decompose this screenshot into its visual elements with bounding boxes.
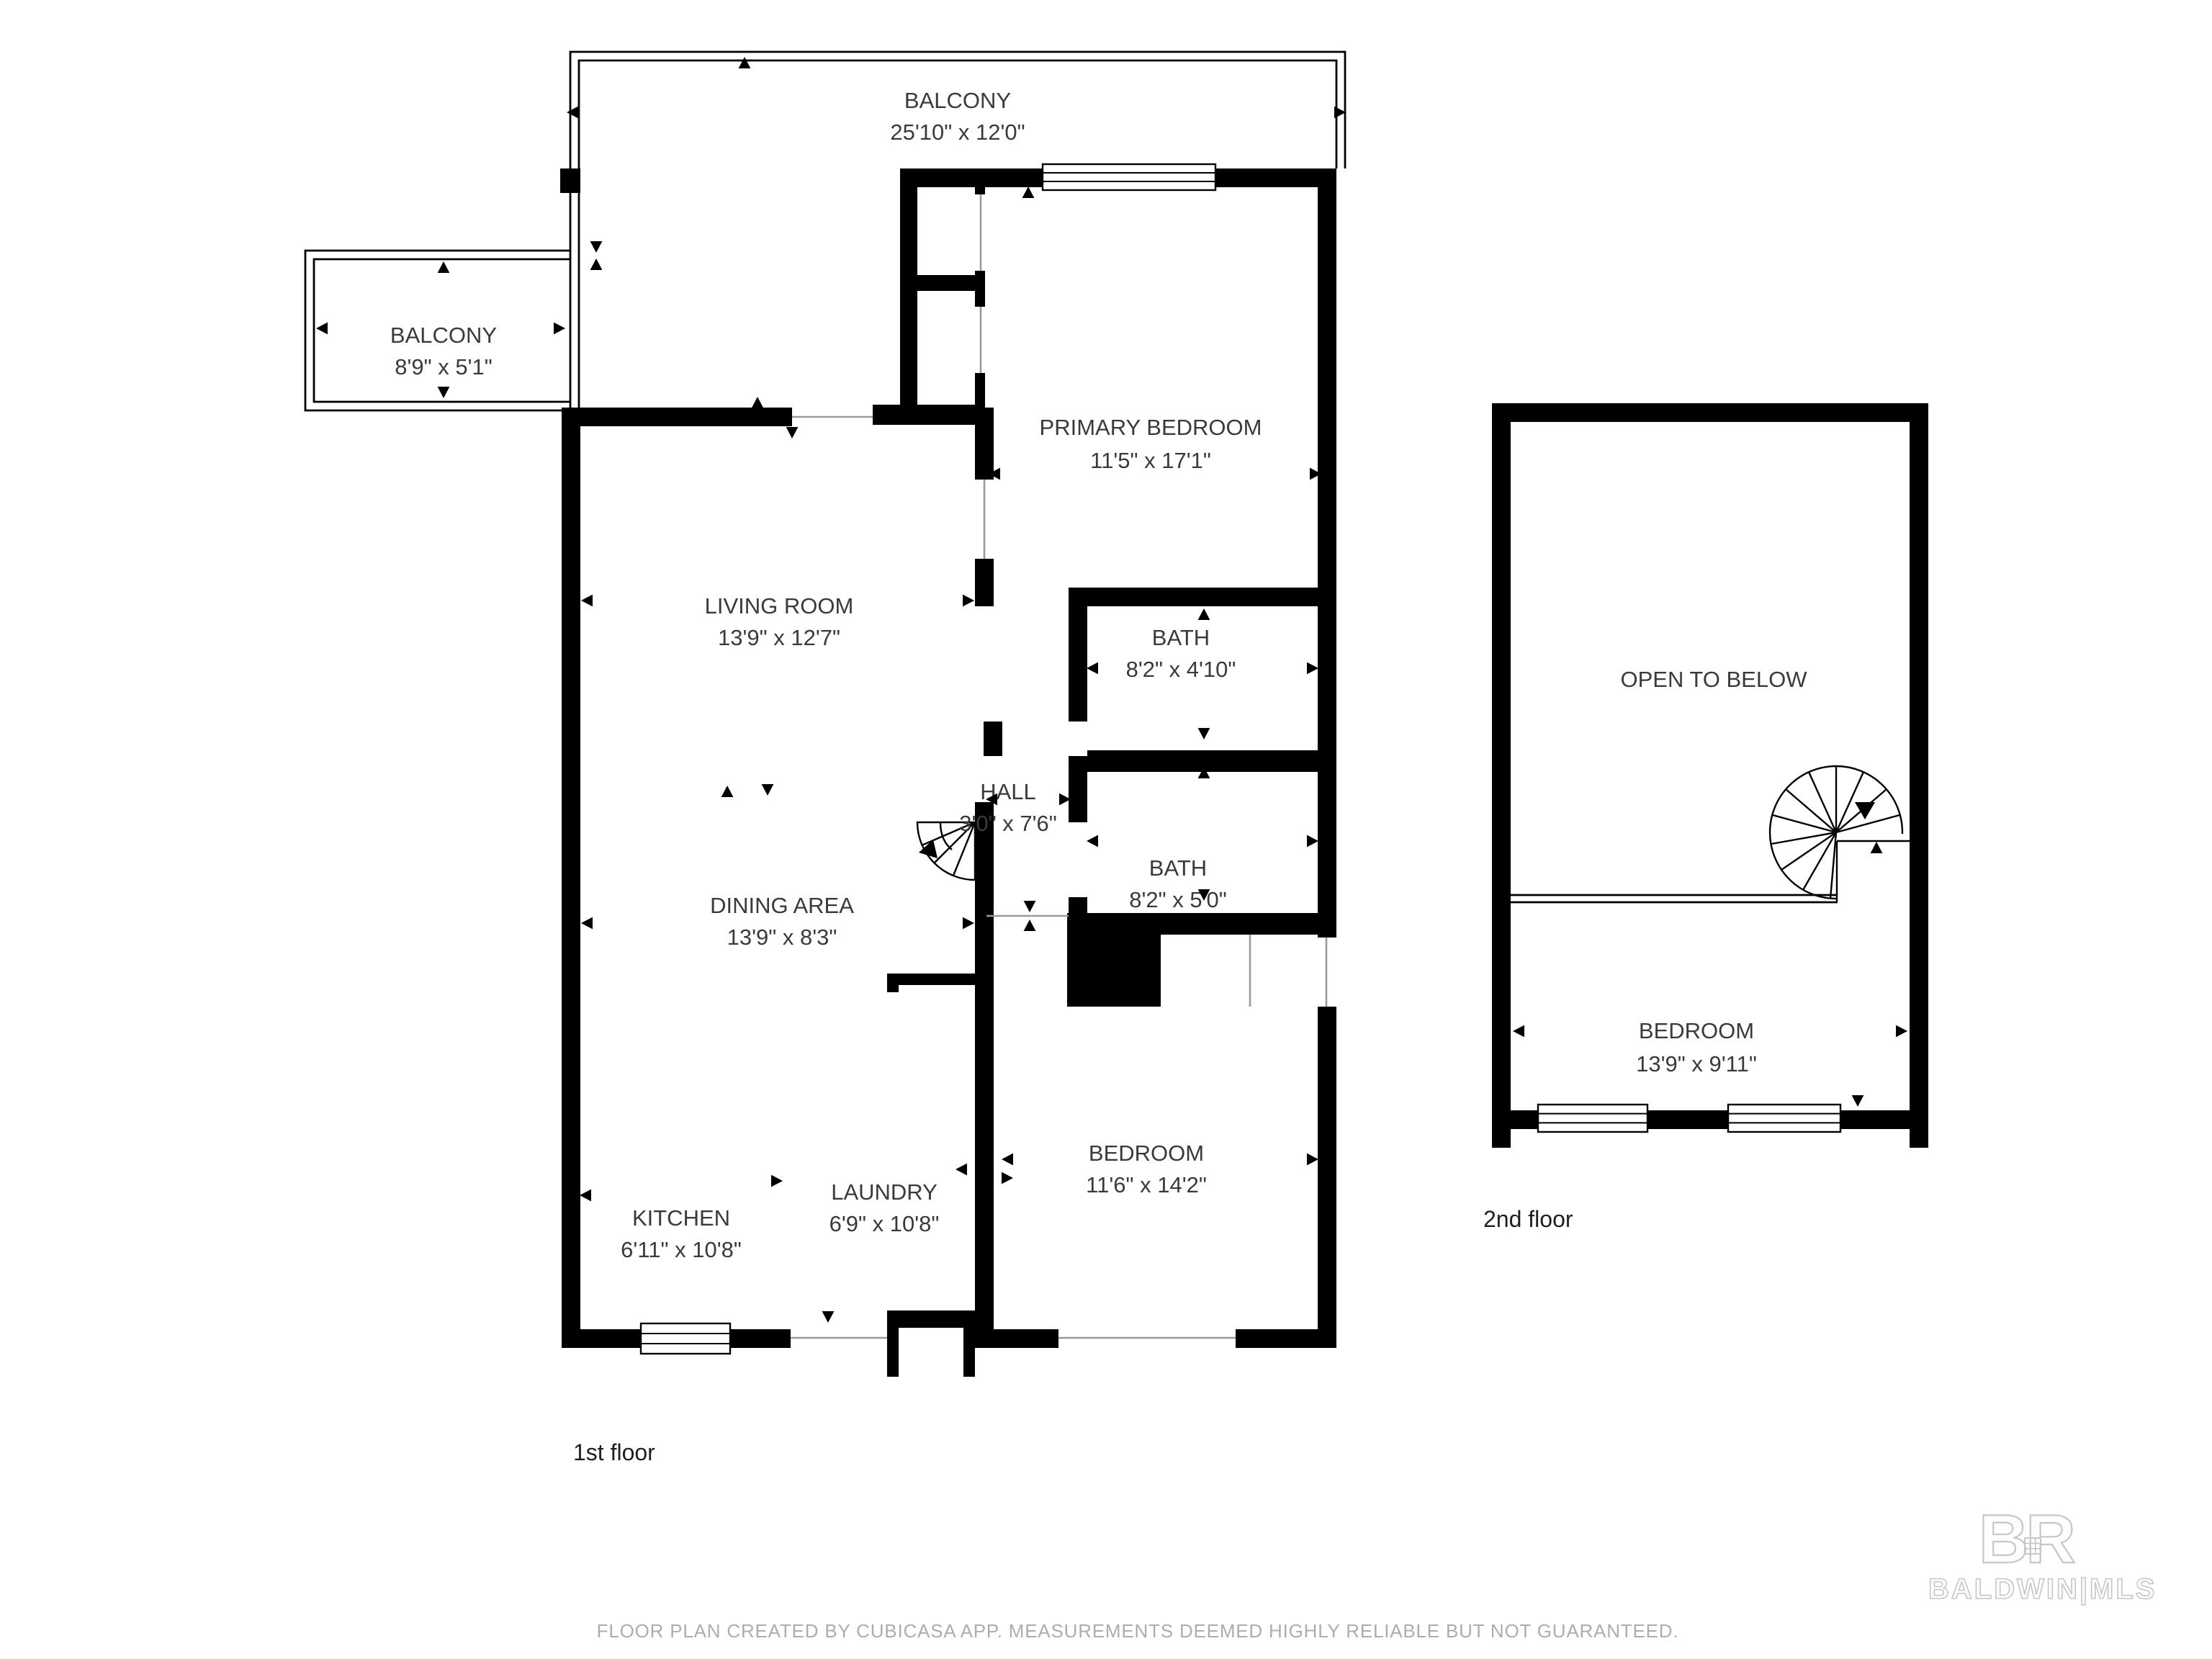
- room-label-kitchen: KITCHEN: [632, 1205, 730, 1231]
- bedroom-window-right: [1728, 1105, 1840, 1132]
- dim-arrow-icon: [316, 323, 328, 335]
- dim-arrow-icon: [1307, 662, 1318, 675]
- second-floor-plan: OPEN TO BELOW BEDROOM 13'9" x 9'11" 2nd …: [1483, 403, 1928, 1232]
- dim-arrow-icon: [1198, 728, 1210, 739]
- dim-arrow-icon: [590, 258, 603, 270]
- kitchen-window: [641, 1323, 730, 1354]
- dim-arrow-icon: [581, 595, 593, 607]
- window-frame: [1538, 1105, 1647, 1132]
- dim-arrow-icon: [567, 107, 578, 119]
- entry-alcove: [899, 1328, 963, 1377]
- room-label-living-room: LIVING ROOM: [705, 593, 854, 619]
- room-dims-bedroom-2nd: 13'9" x 9'11": [1636, 1051, 1757, 1076]
- floor-plan-canvas: BALCONY 25'10" x 12'0" BALCONY 8'9" x 5'…: [0, 0, 2212, 1659]
- dim-arrow-icon: [1024, 901, 1036, 912]
- dim-arrow-icon: [752, 397, 764, 408]
- logo-monogram: BR: [1979, 1501, 2074, 1578]
- room-dims-bath-1: 8'2" x 4'10": [1126, 657, 1236, 682]
- dim-arrow-icon: [580, 1190, 591, 1202]
- window-frame: [1043, 164, 1215, 190]
- footer-disclaimer: FLOOR PLAN CREATED BY CUBICASA APP. MEAS…: [597, 1620, 1679, 1642]
- dim-arrow-icon: [1852, 1095, 1864, 1107]
- logo-wordmark: BALDWIN|MLS: [1928, 1573, 2157, 1605]
- room-dims-hall: 3'0" x 7'6": [959, 811, 1057, 836]
- window-frame: [641, 1323, 730, 1354]
- room-dims-laundry: 6'9" x 10'8": [829, 1211, 940, 1236]
- room-dims-bath-2: 8'2" x 5'0": [1129, 887, 1227, 912]
- room-dims-bedroom-1st: 11'6" x 14'2": [1086, 1172, 1207, 1197]
- room-dims-balcony-side: 8'9" x 5'1": [395, 354, 493, 379]
- dim-arrow-icon: [762, 784, 774, 796]
- dim-arrow-icon: [1087, 662, 1098, 675]
- dim-arrow-icon: [590, 241, 603, 253]
- primary-bedroom-balcony-window: [1043, 164, 1215, 190]
- floor-label-2nd: 2nd floor: [1483, 1206, 1573, 1232]
- stair-direction-arrow-icon: [1855, 802, 1875, 819]
- dim-arrow-icon: [554, 323, 565, 335]
- room-label-dining-area: DINING AREA: [710, 893, 854, 918]
- dim-arrow-icon: [739, 57, 751, 68]
- dimension-arrows-1st-floor: [316, 57, 1346, 1323]
- room-label-open-to-below: OPEN TO BELOW: [1621, 667, 1808, 692]
- room-label-laundry: LAUNDRY: [831, 1179, 938, 1205]
- dim-arrow-icon: [1307, 835, 1318, 848]
- room-dims-living-room: 13'9" x 12'7": [718, 625, 840, 650]
- bedroom-window-left: [1538, 1105, 1647, 1132]
- dim-arrow-icon: [1896, 1025, 1907, 1038]
- dim-arrow-icon: [1002, 1172, 1013, 1184]
- room-label-bath-2: BATH: [1149, 855, 1207, 881]
- room-label-balcony-side: BALCONY: [390, 323, 497, 348]
- dim-arrow-icon: [438, 261, 450, 273]
- open-to-below-edge: [1511, 895, 1838, 902]
- room-label-primary-bedroom: PRIMARY BEDROOM: [1040, 415, 1262, 440]
- walls-1st-floor: [560, 168, 1336, 1377]
- dim-arrow-icon: [581, 917, 593, 930]
- window-frame: [1728, 1105, 1840, 1132]
- dim-arrow-icon: [1307, 1154, 1318, 1166]
- room-label-balcony-top: BALCONY: [904, 88, 1011, 113]
- dim-arrow-icon: [1513, 1025, 1524, 1038]
- room-dims-dining-area: 13'9" x 8'3": [727, 925, 837, 950]
- first-floor-plan: BALCONY 25'10" x 12'0" BALCONY 8'9" x 5'…: [305, 52, 1346, 1465]
- dim-arrow-icon: [822, 1311, 835, 1323]
- dim-arrow-icon: [963, 917, 974, 930]
- dim-arrow-icon: [1002, 1154, 1013, 1166]
- spiral-stair-2nd-floor: [1770, 766, 1910, 902]
- dim-arrow-icon: [956, 1164, 967, 1176]
- room-label-bedroom-1st: BEDROOM: [1089, 1141, 1204, 1166]
- room-dims-kitchen: 6'11" x 10'8": [621, 1237, 742, 1262]
- dim-arrow-icon: [1198, 608, 1210, 620]
- baldwin-mls-logo: BR BALDWIN|MLS: [1928, 1501, 2157, 1605]
- room-label-bedroom-2nd: BEDROOM: [1639, 1018, 1754, 1043]
- dim-arrow-icon: [786, 427, 799, 439]
- floor-label-1st: 1st floor: [573, 1439, 655, 1465]
- room-label-bath-1: BATH: [1152, 625, 1210, 650]
- room-dims-balcony-top: 25'10" x 12'0": [890, 120, 1025, 145]
- room-dims-primary-bedroom: 11'5" x 17'1": [1090, 448, 1211, 473]
- dim-arrow-icon: [1087, 835, 1098, 848]
- dim-arrow-icon: [771, 1175, 783, 1187]
- dim-arrow-icon: [1024, 920, 1036, 931]
- dim-arrow-icon: [438, 387, 450, 398]
- dim-arrow-icon: [1022, 186, 1035, 198]
- dim-arrow-icon: [721, 786, 734, 797]
- dim-arrow-icon: [963, 595, 974, 607]
- stair-landing: [1838, 834, 1910, 902]
